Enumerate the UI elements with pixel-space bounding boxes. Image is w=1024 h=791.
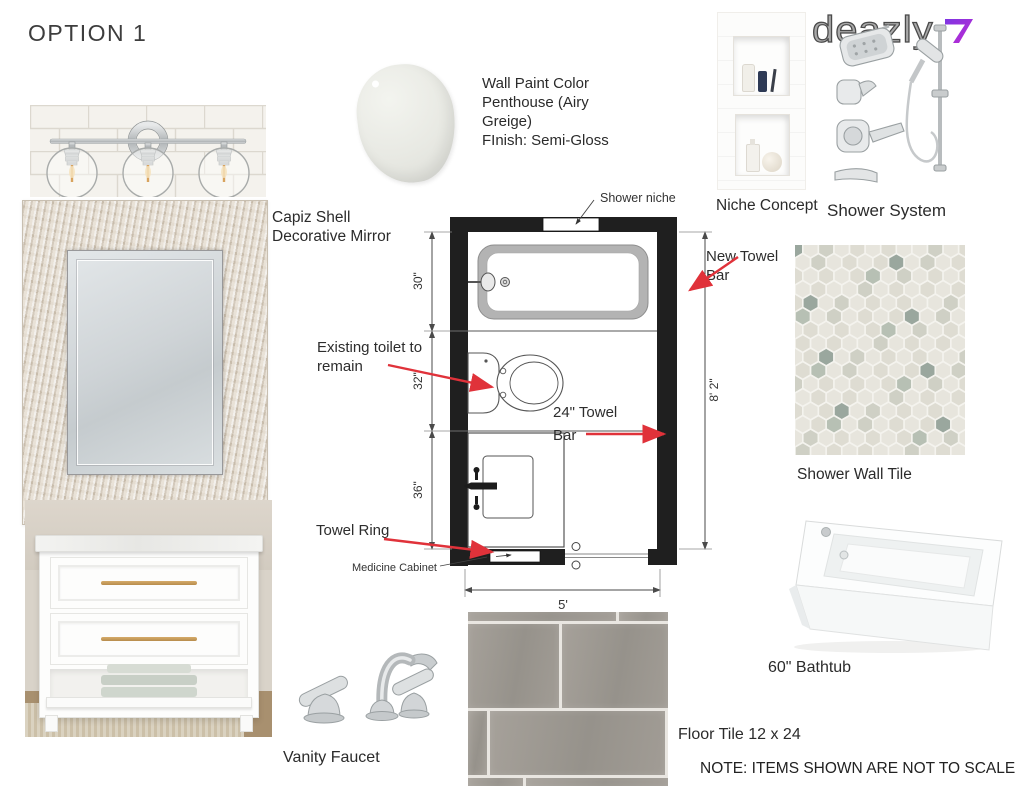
towel-ring-label: Towel Ring — [316, 522, 389, 539]
toilet-symbol — [468, 353, 563, 413]
shower-system-image — [825, 20, 965, 195]
door-symbol — [565, 543, 648, 570]
bathtub-image — [770, 503, 1012, 655]
dim-5ft: 5' — [558, 597, 568, 612]
floor-tile-image — [468, 612, 668, 786]
vanity-faucet-image — [283, 618, 453, 730]
shower-wall-tile-image — [795, 245, 965, 455]
dim-30: 30" — [411, 272, 425, 290]
paint-label-line2: Penthouse (Airy — [482, 93, 652, 112]
shower-niche-label: Shower niche — [600, 191, 676, 205]
existing-toilet-label-2: remain — [317, 358, 363, 375]
design-board: OPTION 1 deazly — [0, 0, 1024, 791]
page-title: OPTION 1 — [28, 20, 147, 47]
paint-label-line3: Greige) — [482, 112, 652, 131]
dim-32: 32" — [411, 372, 425, 390]
towel-bar-24-label-1: 24" Towel — [553, 404, 617, 421]
floor-plan: 30" 32" 36" 8' 2" 5' Shower niche Medici… — [300, 185, 795, 650]
bathtub-label: 60" Bathtub — [768, 658, 851, 678]
paint-label-line1: Wall Paint Color — [482, 74, 652, 93]
capiz-mirror-image — [22, 200, 268, 525]
bathtub-symbol — [468, 245, 648, 319]
dim-36: 36" — [411, 481, 425, 499]
mirror-glass — [67, 250, 223, 475]
vanity-faucet-label: Vanity Faucet — [283, 748, 380, 768]
medicine-cabinet-label: Medicine Cabinet — [352, 562, 437, 574]
vanity-cabinet-image — [25, 500, 272, 737]
new-towel-bar-label-1: New Towel — [706, 248, 778, 265]
niche-concept-image — [717, 12, 806, 190]
niche-concept-label: Niche Concept — [716, 196, 818, 215]
paint-label-line4: FInish: Semi-Gloss — [482, 131, 652, 150]
dim-8ft2: 8' 2" — [707, 378, 721, 401]
existing-toilet-label-1: Existing toilet to — [317, 339, 422, 356]
floor-tile-label: Floor Tile 12 x 24 — [678, 725, 801, 745]
paint-label: Wall Paint Color Penthouse (Airy Greige)… — [482, 74, 652, 150]
scale-note: NOTE: ITEMS SHOWN ARE NOT TO SCALE — [700, 760, 1015, 778]
vanity-light-image — [30, 105, 266, 197]
shower-wall-tile-label: Shower Wall Tile — [797, 465, 912, 484]
shower-niche-symbol — [543, 218, 599, 231]
towel-bar-24-label-2: Bar — [553, 427, 576, 444]
shower-system-label: Shower System — [827, 200, 946, 221]
vanity-symbol — [464, 433, 565, 547]
paint-swatch — [351, 59, 462, 189]
